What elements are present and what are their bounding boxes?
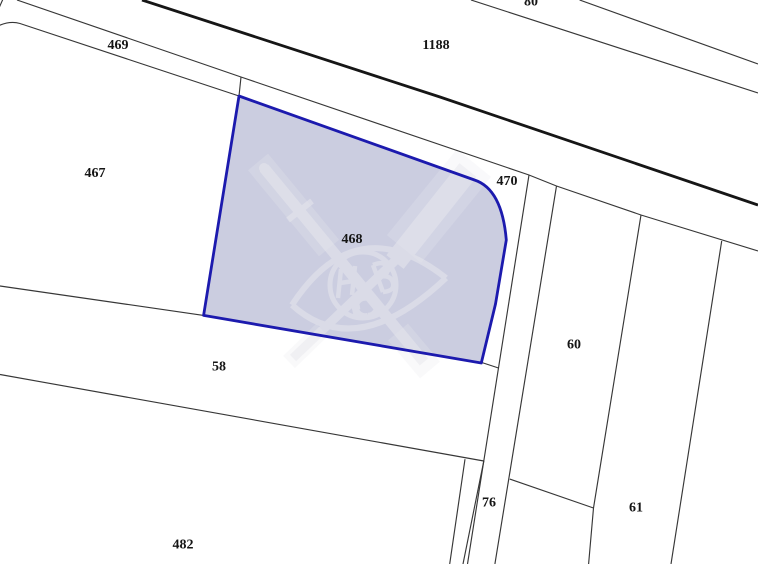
svg-text:58: 58: [212, 360, 226, 375]
svg-text:470: 470: [497, 174, 518, 189]
svg-text:469: 469: [108, 38, 129, 53]
svg-text:1188: 1188: [422, 38, 449, 53]
svg-text:467: 467: [85, 166, 106, 181]
svg-text:61: 61: [629, 501, 643, 516]
svg-text:468: 468: [342, 232, 363, 247]
svg-text:80: 80: [524, 0, 538, 10]
svg-text:60: 60: [567, 338, 581, 353]
svg-text:76: 76: [482, 496, 496, 511]
svg-text:482: 482: [173, 538, 194, 553]
